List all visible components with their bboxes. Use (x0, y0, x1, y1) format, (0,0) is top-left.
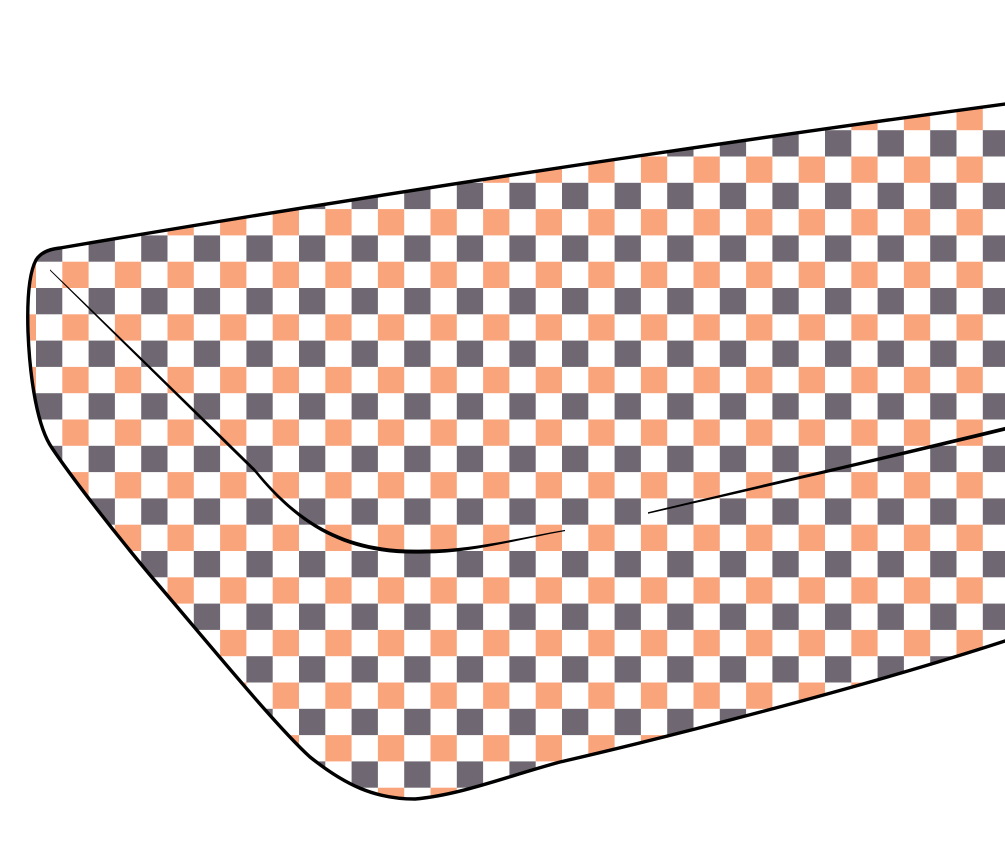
mattress-drawing-canvas (0, 0, 1005, 865)
mattress-illustration (0, 0, 1005, 865)
